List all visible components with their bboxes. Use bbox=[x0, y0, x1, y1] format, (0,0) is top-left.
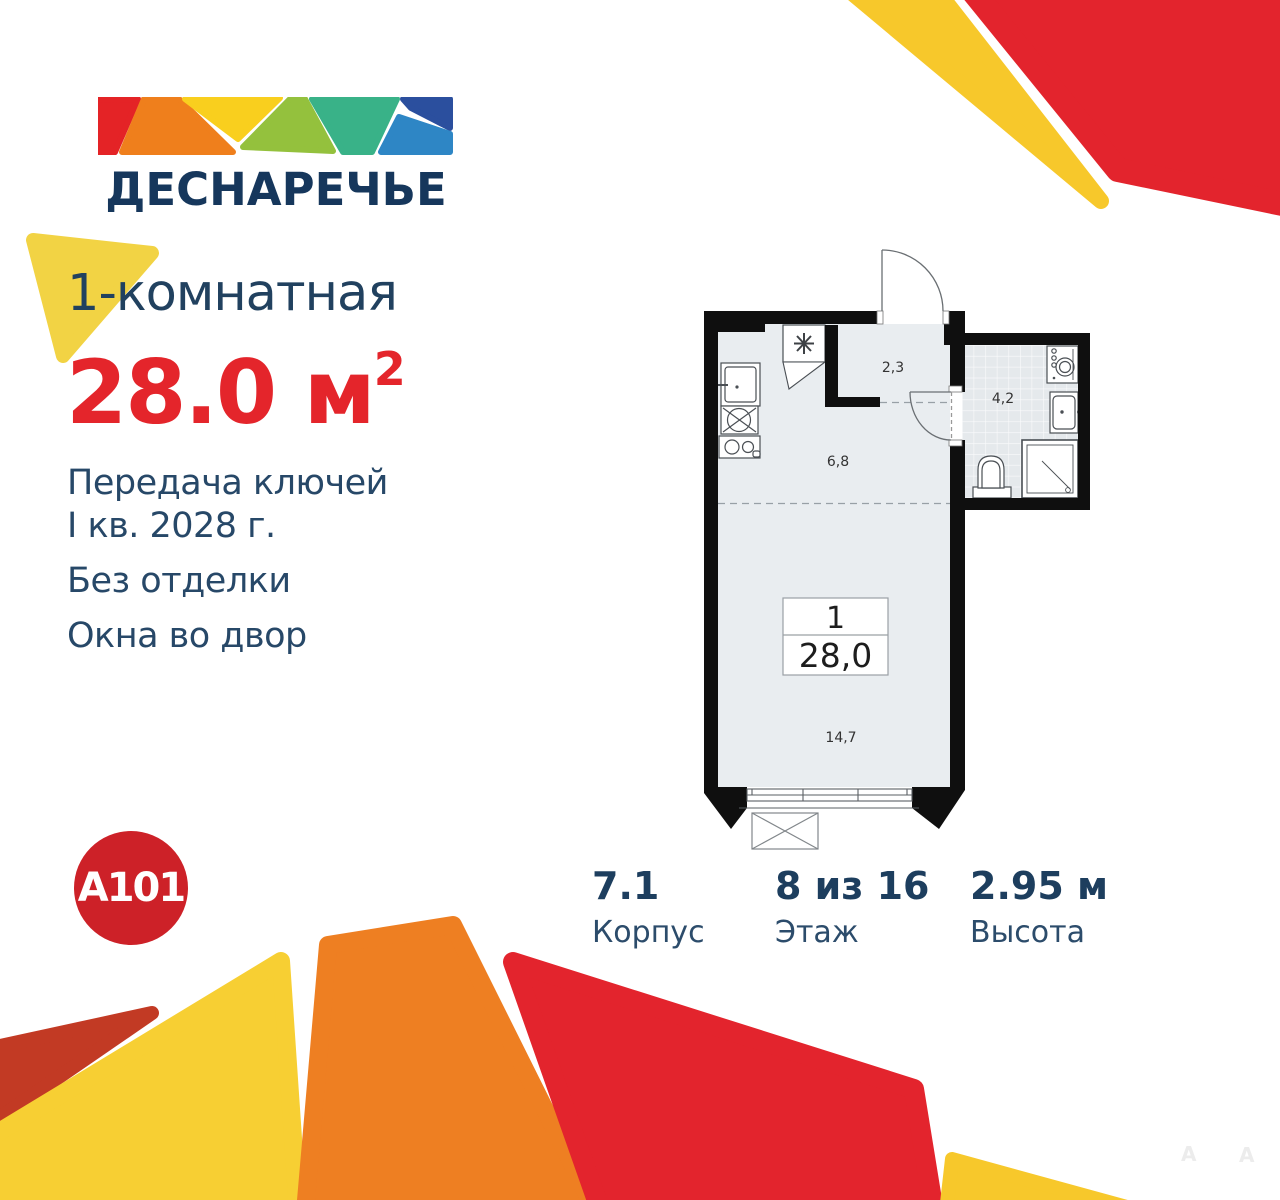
rooms-title: 1-комнатная bbox=[67, 264, 397, 323]
area-value: 28.0 м bbox=[66, 341, 374, 444]
washing-place-fixture bbox=[721, 406, 758, 434]
stat-building: 7.1 Корпус bbox=[592, 864, 705, 950]
developer-logo-text: A101 bbox=[78, 865, 184, 911]
floor-plan: 1 28,0 2,3 4,2 6,8 14,7 bbox=[690, 240, 1100, 860]
finish-type: Без отделки bbox=[67, 561, 291, 601]
area-value-row: 28.0 м2 bbox=[66, 346, 406, 437]
listing-card: ДЕСНАРЕЧЬЕ 1-комнатная 28.0 м2 Передача … bbox=[0, 0, 1280, 1200]
stat-height-value: 2.95 м bbox=[970, 864, 1108, 908]
decor-top-right-red-shape bbox=[962, 0, 1280, 206]
shower-fixture bbox=[1022, 440, 1078, 498]
handover-line1: Передача ключей bbox=[67, 463, 388, 503]
stat-building-value: 7.1 bbox=[592, 864, 705, 908]
hallway-area-label: 2,3 bbox=[882, 360, 904, 376]
kitchen-sink-fixture bbox=[716, 363, 760, 406]
windows-view: Окна во двор bbox=[67, 616, 307, 656]
watermark-letter: A bbox=[1181, 1142, 1196, 1166]
entry-door-arc bbox=[882, 250, 943, 311]
room-area-label: 14,7 bbox=[825, 730, 856, 746]
complex-name: ДЕСНАРЕЧЬЕ bbox=[96, 163, 456, 216]
stat-height: 2.95 м Высота bbox=[970, 864, 1108, 950]
kitchen-area-label: 6,8 bbox=[827, 454, 849, 470]
bathroom-area-label: 4,2 bbox=[992, 391, 1014, 407]
developer-logo: A101 bbox=[74, 831, 188, 945]
stat-height-label: Высота bbox=[970, 915, 1108, 950]
stat-floor-value: 8 из 16 bbox=[775, 864, 930, 908]
decor-bottom-orange-wedge bbox=[305, 925, 596, 1200]
asterisk-icon bbox=[794, 333, 814, 354]
handover-line2: I кв. 2028 г. bbox=[67, 506, 276, 546]
stat-building-label: Корпус bbox=[592, 915, 705, 950]
kitchen-fixtures bbox=[716, 363, 760, 458]
area-power: 2 bbox=[374, 342, 406, 396]
window bbox=[739, 789, 919, 808]
hob-fixture bbox=[719, 436, 760, 458]
decor-bottom-red-shape bbox=[513, 962, 934, 1200]
unit-total-area: 28,0 bbox=[799, 636, 872, 675]
complex-logo-icon bbox=[98, 97, 454, 155]
decor-left-dark-red-wedge bbox=[0, 1013, 152, 1130]
decor-bottom-left-yellow-triangle bbox=[0, 961, 298, 1200]
decor-bottom-right-yellow-wedge bbox=[946, 1159, 1145, 1200]
balcony-basket bbox=[752, 813, 818, 849]
stat-floor-label: Этаж bbox=[775, 915, 930, 950]
stat-floor: 8 из 16 Этаж bbox=[775, 864, 930, 950]
washing-machine-fixture bbox=[1047, 346, 1078, 383]
decor-top-right-yellow-wedge bbox=[851, 0, 1101, 201]
unit-info-box: 1 28,0 bbox=[783, 598, 888, 675]
watermark-letter: A bbox=[1239, 1143, 1254, 1167]
unit-rooms-count: 1 bbox=[826, 601, 845, 636]
